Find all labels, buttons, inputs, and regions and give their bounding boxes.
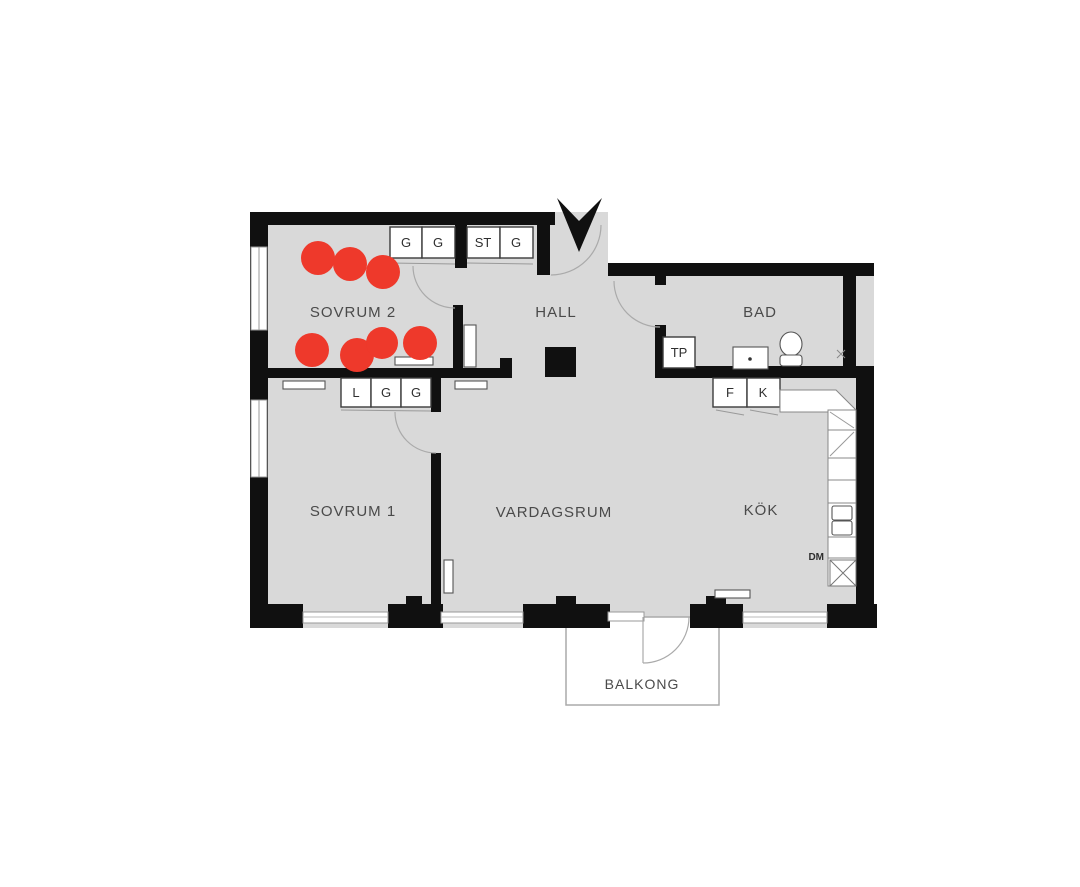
- fridge-label: F: [726, 385, 734, 400]
- wall-bad-door-stub: [655, 276, 666, 285]
- sink-drain-dot: [748, 357, 752, 361]
- radiator-sovrum1: [283, 381, 325, 389]
- radiator-kok: [715, 590, 750, 598]
- label-sovrum1: SOVRUM 1: [310, 503, 396, 520]
- wall-balcony-left-bump: [556, 596, 576, 604]
- wall-sovrum2-hall: [453, 305, 463, 368]
- floor-hall-bad: [553, 263, 874, 378]
- dishwasher-label: DM: [808, 552, 824, 563]
- wall-closet-divider: [455, 220, 467, 268]
- marker-dot: [301, 241, 335, 275]
- wall-sovrum-divider: [252, 368, 510, 378]
- wall-balcony-left-pier: [523, 604, 610, 628]
- floor-plan-drawing: G G ST G L G G TP F K: [0, 0, 1080, 887]
- closet-label-g3: G: [511, 235, 521, 250]
- bathroom-unit-label: TP: [671, 345, 688, 360]
- closet-label-g5: G: [411, 385, 421, 400]
- kitchen-sink-bowl-1: [832, 506, 852, 520]
- shaft-block: [545, 347, 576, 377]
- wall-entrance-jamb: [537, 225, 550, 275]
- label-vardagsrum: VARDAGSRUM: [496, 504, 612, 521]
- wall-balcony-right-pier: [690, 604, 743, 628]
- wall-top: [250, 212, 555, 225]
- wall-kok-right: [856, 366, 874, 628]
- radiator-hall: [464, 325, 476, 367]
- marker-dot: [366, 255, 400, 289]
- label-sovrum2: SOVRUM 2: [310, 304, 396, 321]
- marker-dot: [295, 333, 329, 367]
- marker-dot: [366, 327, 398, 359]
- marker-dot: [403, 326, 437, 360]
- closet-label-g4: G: [381, 385, 391, 400]
- radiator-vardagsrum-bottom: [444, 560, 453, 593]
- kitchen-sink-bowl-2: [832, 521, 852, 535]
- label-kok: KÖK: [744, 501, 779, 519]
- toilet-bowl: [780, 332, 802, 356]
- radiator-vardagsrum-top: [455, 381, 487, 389]
- label-hall: HALL: [535, 304, 577, 321]
- wall-sovrum1-right: [431, 453, 441, 610]
- wall-hall-bad-top: [608, 263, 874, 276]
- wall-divider-endcap: [500, 358, 512, 378]
- wall-bottom-right-corner: [827, 604, 877, 628]
- wall-bottom-center-pier: [388, 604, 443, 628]
- closet-label-g2: G: [433, 235, 443, 250]
- wall-bottom-left-corner: [250, 604, 303, 628]
- marker-dot: [333, 247, 367, 281]
- label-balkong: BALKONG: [605, 676, 680, 692]
- floor-plan-page: G G ST G L G G TP F K: [0, 0, 1080, 887]
- wall-bad-right: [843, 263, 856, 373]
- balcony-door-sidelight: [608, 612, 644, 621]
- freezer-label: K: [759, 385, 768, 400]
- closet-label-g1: G: [401, 235, 411, 250]
- toilet-tank: [780, 355, 802, 366]
- wall-sovrum1-right-top: [431, 378, 441, 412]
- label-bad: BAD: [743, 304, 777, 321]
- closet-label-st: ST: [475, 235, 492, 250]
- wall-bottom-center-bump: [406, 596, 422, 604]
- closet-label-l: L: [352, 385, 359, 400]
